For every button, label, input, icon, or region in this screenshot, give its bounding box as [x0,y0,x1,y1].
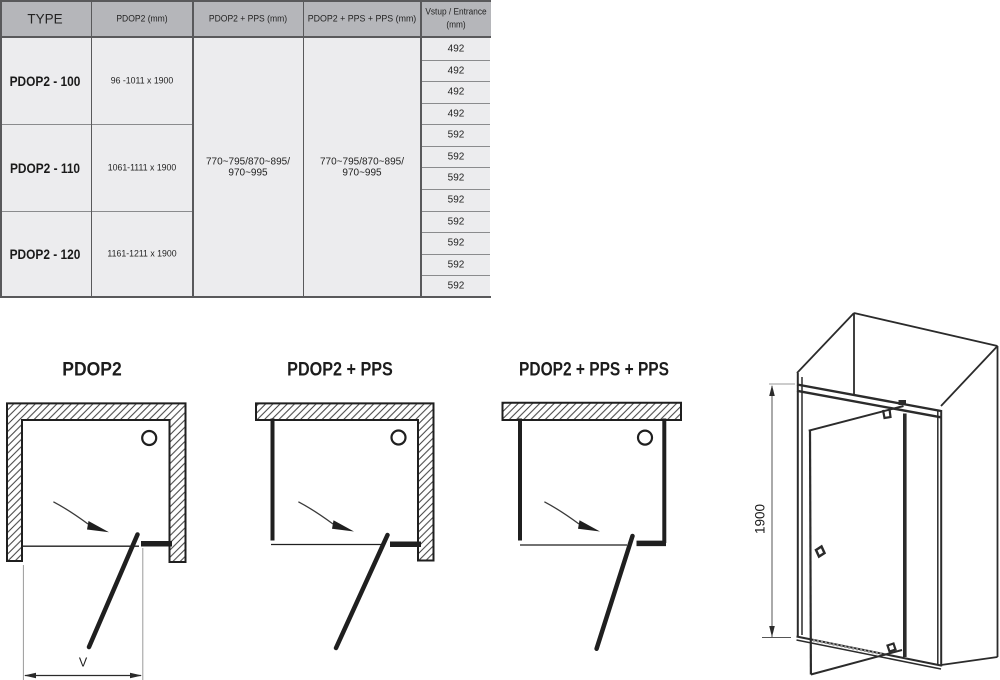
svg-text:V: V [79,656,88,670]
svg-text:1900: 1900 [753,504,768,534]
